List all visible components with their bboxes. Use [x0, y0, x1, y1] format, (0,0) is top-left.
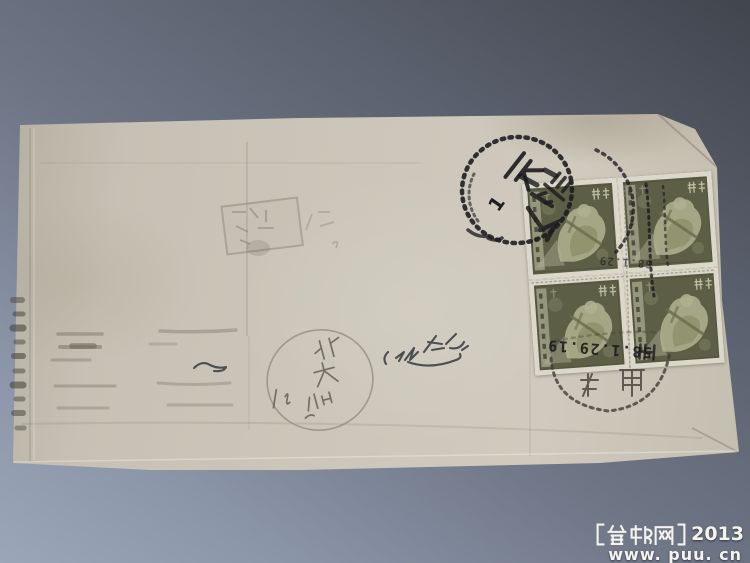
stamp-design-icon — [534, 279, 624, 370]
stamp-design-icon — [629, 273, 719, 364]
photo-canvas: 1 58.1.29.19 58.1.29 — [0, 0, 750, 563]
postage-stamp — [529, 274, 630, 376]
postage-stamp — [624, 267, 725, 369]
watermark-line1: 2013 — [595, 523, 744, 546]
watermark-year: 2013 — [691, 524, 744, 545]
stamp-design-icon — [527, 183, 617, 274]
stamp-design-icon — [622, 176, 712, 267]
stamp-block — [522, 171, 725, 376]
watermark-site-name-cjk-icon — [595, 523, 687, 546]
watermark: 2013 www. puu. cn — [595, 523, 744, 563]
postage-stamp — [617, 171, 718, 273]
postage-stamp — [522, 178, 623, 280]
watermark-url: www. puu. cn — [595, 546, 744, 563]
